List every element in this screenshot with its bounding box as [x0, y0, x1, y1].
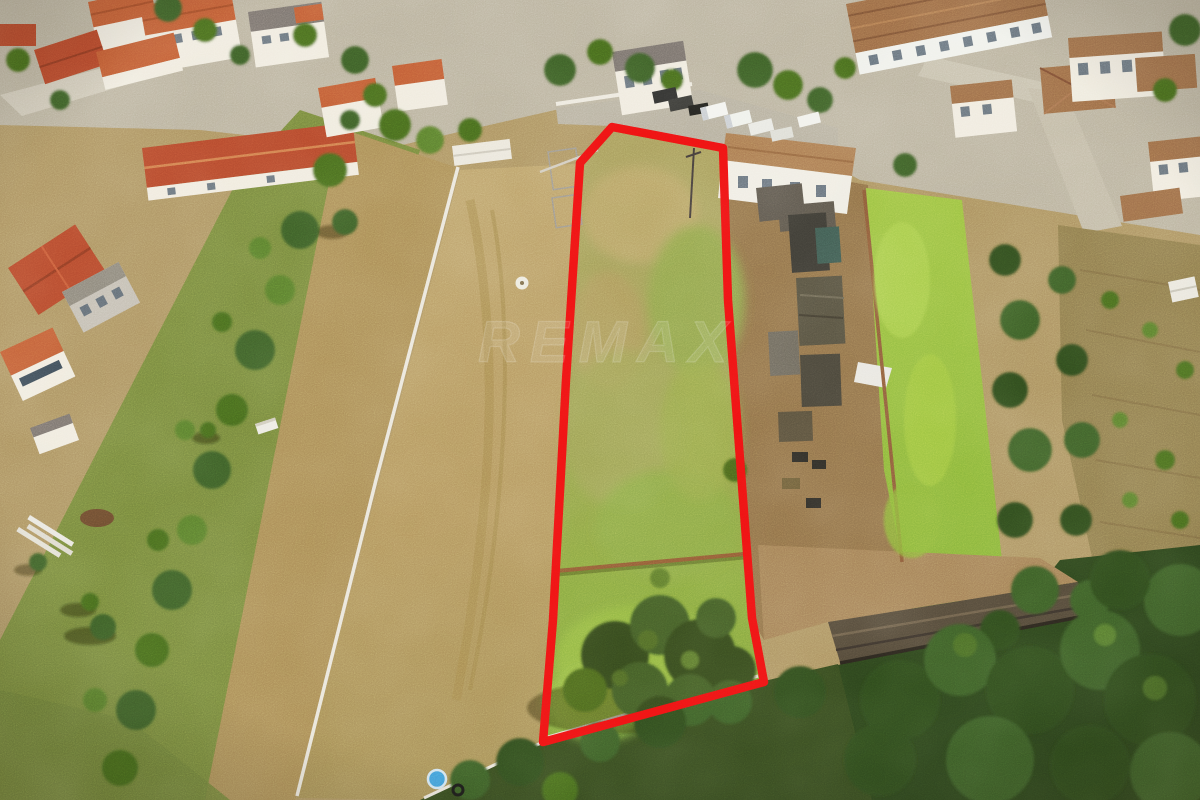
- watermark: REMAX: [478, 310, 737, 375]
- aerial-photo-canvas: REMAX: [0, 0, 1200, 800]
- aerial-photo: REMAX: [0, 0, 1200, 800]
- vignette: [0, 0, 1200, 800]
